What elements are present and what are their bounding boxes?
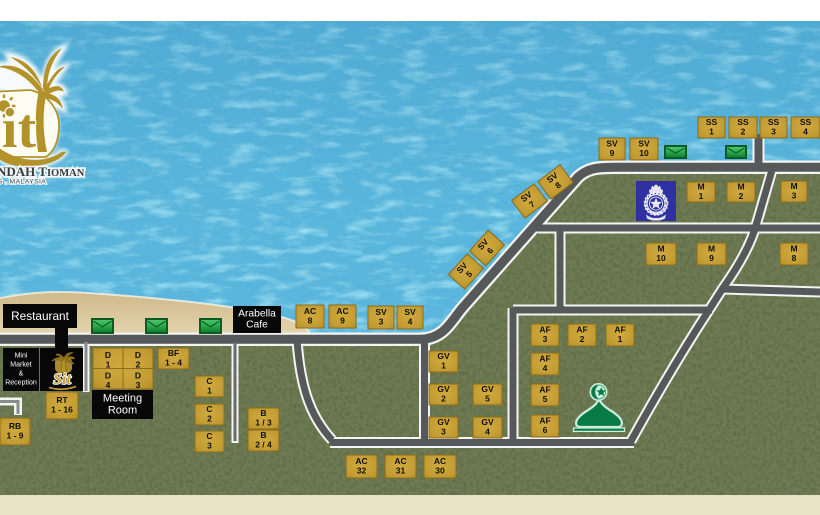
svg-text:1: 1	[699, 191, 704, 201]
svg-text:6: 6	[543, 425, 548, 435]
svg-text:Market: Market	[10, 362, 31, 369]
svg-text:M: M	[697, 182, 704, 192]
svg-text:SV: SV	[638, 139, 650, 149]
svg-text:9: 9	[340, 316, 345, 326]
svg-text:8: 8	[792, 253, 797, 263]
svg-text:31: 31	[396, 466, 406, 476]
svg-text:B: B	[260, 408, 266, 418]
svg-text:D: D	[135, 371, 141, 381]
svg-text:1 - 9: 1 - 9	[6, 431, 23, 441]
svg-text:8: 8	[308, 316, 313, 326]
svg-text:1 - 16: 1 - 16	[51, 405, 73, 415]
svg-text:&: &	[19, 371, 24, 378]
svg-text:C: C	[206, 431, 212, 441]
svg-text:2: 2	[136, 360, 141, 370]
svg-text:4: 4	[803, 127, 808, 137]
svg-text:D: D	[105, 371, 111, 381]
svg-text:GV: GV	[481, 384, 494, 394]
svg-text:3: 3	[379, 317, 384, 327]
svg-text:AC: AC	[355, 456, 367, 466]
svg-text:1: 1	[207, 386, 212, 396]
svg-text:Sit: Sit	[53, 371, 71, 388]
svg-text:2 / 4: 2 / 4	[255, 440, 272, 450]
svg-text:B: B	[260, 430, 266, 440]
svg-text:SV: SV	[606, 139, 618, 149]
svg-text:Meeting: Meeting	[103, 393, 142, 405]
svg-text:RT: RT	[56, 395, 68, 405]
svg-text:3: 3	[207, 441, 212, 451]
svg-text:10: 10	[639, 148, 649, 158]
svg-text:BF: BF	[168, 348, 179, 358]
svg-text:GV: GV	[481, 417, 494, 427]
svg-text:GV: GV	[437, 417, 450, 427]
svg-text:3: 3	[136, 380, 141, 390]
svg-text:AC: AC	[394, 456, 406, 466]
svg-text:1 - 4: 1 - 4	[165, 358, 182, 368]
svg-text:5: 5	[485, 394, 490, 404]
svg-text:2: 2	[739, 191, 744, 201]
svg-text:D: D	[105, 350, 111, 360]
svg-text:3: 3	[441, 427, 446, 437]
svg-text:Room: Room	[108, 405, 137, 417]
svg-text:AC: AC	[434, 456, 446, 466]
svg-text:M: M	[737, 182, 744, 192]
svg-text:1: 1	[709, 127, 714, 137]
svg-text:D: D	[135, 350, 141, 360]
svg-text:M: M	[790, 244, 797, 254]
svg-text:it: it	[2, 98, 37, 160]
svg-text:5: 5	[543, 394, 548, 404]
svg-text:2: 2	[580, 334, 585, 344]
svg-text:2: 2	[441, 394, 446, 404]
svg-text:AC: AC	[336, 306, 348, 316]
svg-text:30: 30	[435, 466, 445, 476]
svg-text:9: 9	[709, 253, 714, 263]
svg-text:SV: SV	[375, 307, 387, 317]
svg-text:1 / 3: 1 / 3	[255, 418, 272, 428]
svg-text:AC: AC	[304, 306, 316, 316]
svg-text:M: M	[708, 244, 715, 254]
svg-text:2: 2	[207, 414, 212, 424]
svg-text:SS: SS	[768, 117, 780, 127]
svg-text:SS: SS	[737, 117, 749, 127]
svg-text:4: 4	[106, 380, 111, 390]
svg-text:AF: AF	[576, 325, 587, 335]
svg-text:32: 32	[357, 466, 367, 476]
svg-text:AF: AF	[614, 325, 625, 335]
svg-text:AF: AF	[539, 385, 550, 395]
svg-text:Arabella: Arabella	[238, 309, 276, 320]
svg-text:3: 3	[543, 334, 548, 344]
svg-text:Reception: Reception	[5, 380, 37, 387]
svg-text:3: 3	[771, 127, 776, 137]
svg-text:1: 1	[618, 334, 623, 344]
svg-text:9: 9	[610, 148, 615, 158]
svg-text:SV: SV	[404, 307, 416, 317]
svg-text:1: 1	[106, 360, 111, 370]
svg-text:GV: GV	[437, 351, 450, 361]
svg-text:M: M	[790, 181, 797, 191]
svg-text:AF: AF	[539, 325, 550, 335]
svg-text:2: 2	[741, 127, 746, 137]
svg-text:G . MALAYSIA: G . MALAYSIA	[0, 179, 46, 186]
svg-text:4: 4	[543, 363, 548, 373]
svg-text:4: 4	[485, 427, 490, 437]
svg-text:Mini: Mini	[15, 353, 28, 360]
svg-text:Restaurant: Restaurant	[11, 309, 69, 323]
svg-text:C: C	[206, 404, 212, 414]
svg-text:Cafe: Cafe	[246, 320, 268, 331]
svg-text:C: C	[206, 376, 212, 386]
svg-text:SS: SS	[706, 117, 718, 127]
svg-text:M: M	[657, 244, 664, 254]
svg-text:AF: AF	[539, 354, 550, 364]
svg-text:1: 1	[441, 361, 446, 371]
svg-text:4: 4	[408, 317, 413, 327]
svg-text:10: 10	[656, 253, 666, 263]
svg-text:SS: SS	[800, 117, 812, 127]
svg-text:RB: RB	[9, 421, 21, 431]
svg-text:GV: GV	[437, 384, 450, 394]
svg-text:3: 3	[792, 191, 797, 201]
svg-text:AF: AF	[539, 416, 550, 426]
